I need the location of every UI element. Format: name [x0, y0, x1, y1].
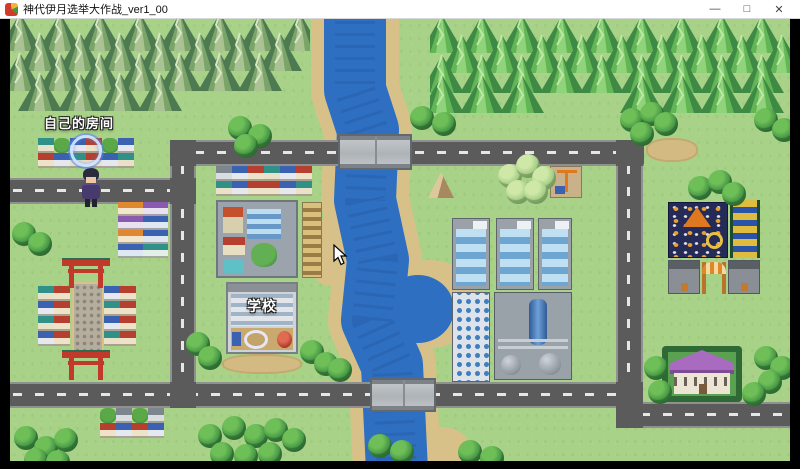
- office-tower-2[interactable]: [496, 218, 534, 290]
- bridge-south: [370, 378, 436, 412]
- tree: [722, 182, 746, 206]
- mid-town-row[interactable]: [216, 166, 320, 198]
- road-bottom-horizontal: [10, 382, 643, 408]
- tree: [234, 134, 258, 158]
- shrine-path: [72, 282, 104, 356]
- tree: [198, 346, 222, 370]
- gate-building-east[interactable]: [728, 260, 760, 294]
- torii-gate-north[interactable]: [62, 258, 110, 288]
- tree: [648, 380, 672, 404]
- tree: [258, 442, 282, 461]
- factory-complex[interactable]: [494, 292, 572, 380]
- tree: [410, 106, 434, 130]
- south-village[interactable]: [100, 408, 164, 440]
- shop-strip[interactable]: [118, 202, 168, 258]
- tree: [654, 112, 678, 136]
- shrine-village-east: [104, 286, 138, 350]
- world-map[interactable]: 自己的房间: [10, 19, 790, 461]
- window-titlebar: 神代伊月选举大作战_ver1_00 — □ ✕: [0, 0, 800, 19]
- shrine-village-west: [38, 286, 72, 350]
- amusement-park[interactable]: [668, 202, 728, 258]
- window-title: 神代伊月选举大作战_ver1_00: [23, 1, 168, 17]
- tree: [222, 416, 246, 440]
- close-button[interactable]: ✕: [763, 0, 795, 19]
- entrance-arch[interactable]: [702, 262, 726, 294]
- gate-building-west[interactable]: [668, 260, 700, 294]
- tree: [28, 232, 52, 256]
- office-block[interactable]: [452, 292, 490, 382]
- office-tower-3[interactable]: [538, 218, 572, 290]
- game-viewport: 自己的房间: [0, 19, 800, 469]
- window-controls: — □ ✕: [699, 0, 795, 19]
- crop-fields: [302, 202, 322, 278]
- arrow-cursor: [333, 244, 349, 266]
- mountain-range-left: [10, 19, 310, 115]
- minimize-button[interactable]: —: [699, 0, 731, 19]
- dirt-patch-school: [222, 354, 302, 374]
- torii-gate-south[interactable]: [62, 350, 110, 380]
- game-window: 神代伊月选举大作战_ver1_00 — □ ✕: [0, 0, 800, 469]
- bridge-north: [338, 134, 412, 170]
- tree: [282, 428, 306, 452]
- player-character: [80, 168, 102, 208]
- mountain-range-right: [430, 19, 790, 115]
- tree: [210, 442, 234, 461]
- tree: [328, 358, 352, 382]
- tree: [390, 440, 414, 461]
- city-block[interactable]: [216, 200, 298, 278]
- tree: [524, 180, 548, 204]
- office-tower-1[interactable]: [452, 218, 490, 290]
- tree: [630, 122, 654, 146]
- mall-building[interactable]: [730, 200, 760, 258]
- tree: [458, 440, 482, 461]
- tree: [644, 356, 668, 380]
- tree: [742, 382, 766, 406]
- tree: [368, 434, 392, 458]
- maximize-button[interactable]: □: [731, 0, 763, 19]
- blue-circle-marker[interactable]: [70, 135, 102, 167]
- tree: [234, 444, 258, 461]
- room-label: 自己的房间: [44, 113, 114, 132]
- school-building[interactable]: 学校: [226, 282, 298, 354]
- dirt-patch-northeast: [646, 138, 698, 162]
- purple-mansion[interactable]: [662, 346, 742, 402]
- tree: [772, 118, 790, 142]
- school-label: 学校: [247, 296, 277, 316]
- app-icon: [5, 3, 18, 16]
- tree: [54, 428, 78, 452]
- road-left-horizontal: [10, 178, 196, 204]
- tree: [432, 112, 456, 136]
